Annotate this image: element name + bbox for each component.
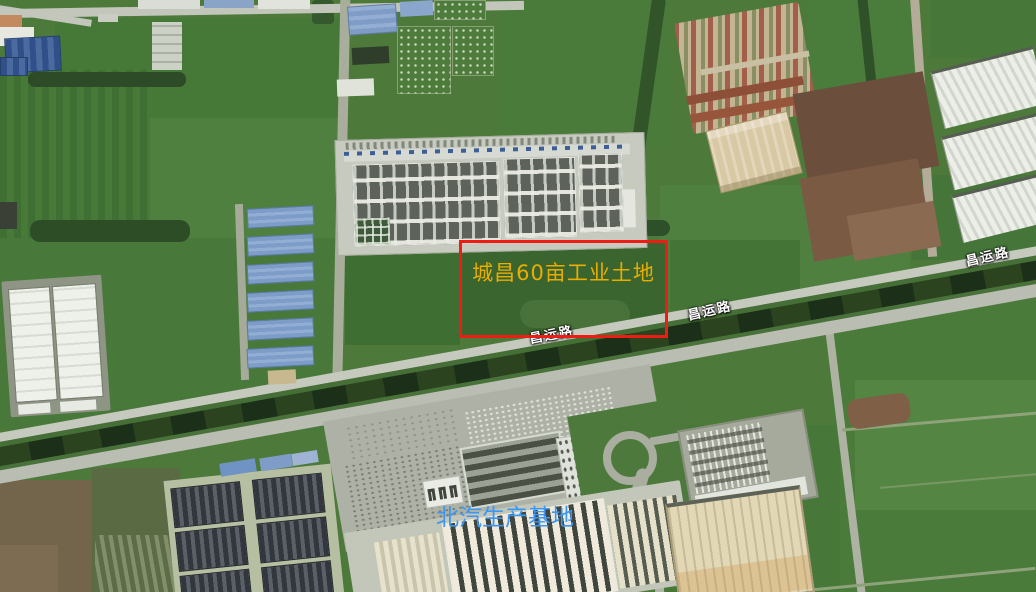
warehouse-blue <box>247 345 315 368</box>
warehouse-blue <box>247 233 315 256</box>
building <box>258 0 310 9</box>
warehouse-dark <box>252 473 326 520</box>
barn-block <box>578 154 624 233</box>
warehouse-dark <box>179 569 253 592</box>
barn-block <box>503 157 577 239</box>
central-industrial-complex <box>335 132 648 256</box>
field <box>0 70 152 238</box>
building-blue-roof <box>347 3 398 35</box>
warehouse-blue <box>291 450 319 466</box>
left-white-warehouse <box>1 275 110 418</box>
roof-arch <box>427 488 436 501</box>
satellite-map-canvas[interactable]: 北汽生产基地 昌运路 昌运路 昌运路 城昌60亩工业土地 <box>0 0 1036 592</box>
white-building <box>623 189 636 227</box>
warehouse-blue <box>247 205 315 228</box>
parcel-label: 城昌60亩工业土地 <box>459 257 668 287</box>
warehouse-blue <box>247 289 315 312</box>
green-sub-block <box>356 218 391 245</box>
building <box>98 14 118 22</box>
building-blue-roof <box>400 0 434 17</box>
factory-roof <box>374 532 451 592</box>
shed <box>152 22 182 70</box>
warehouse-dark <box>261 560 335 592</box>
orchard-grid <box>397 26 451 94</box>
orchard-grid <box>434 0 486 20</box>
solar-panel-array <box>0 57 28 76</box>
building-dark <box>0 202 17 229</box>
outbuilding <box>18 403 51 415</box>
building <box>337 78 375 96</box>
building-tan-roof <box>268 369 297 384</box>
tree-line <box>30 220 190 242</box>
warehouse-dark <box>256 516 330 563</box>
dirt-field <box>0 545 58 592</box>
building-blue-roof <box>204 0 254 8</box>
dark-warehouse-group <box>163 464 344 592</box>
warehouse-roof <box>8 286 58 403</box>
field <box>95 535 180 592</box>
orchard-grid <box>452 26 494 76</box>
cream-warehouse <box>665 485 815 592</box>
warehouse-roof <box>52 283 104 400</box>
warehouse-blue <box>247 317 315 340</box>
facility-label: 北汽生产基地 <box>436 498 574 532</box>
warehouse-dark <box>175 525 249 572</box>
roof-arch <box>449 485 458 498</box>
warehouse-dark <box>170 481 244 528</box>
warehouse-blue <box>247 261 315 284</box>
tree-line <box>28 72 186 87</box>
field <box>345 250 460 345</box>
warehouse-orange-section <box>677 555 812 592</box>
parcel-outline <box>459 240 668 338</box>
building <box>138 0 200 9</box>
outbuilding <box>60 399 97 411</box>
pond-dark <box>352 46 390 65</box>
